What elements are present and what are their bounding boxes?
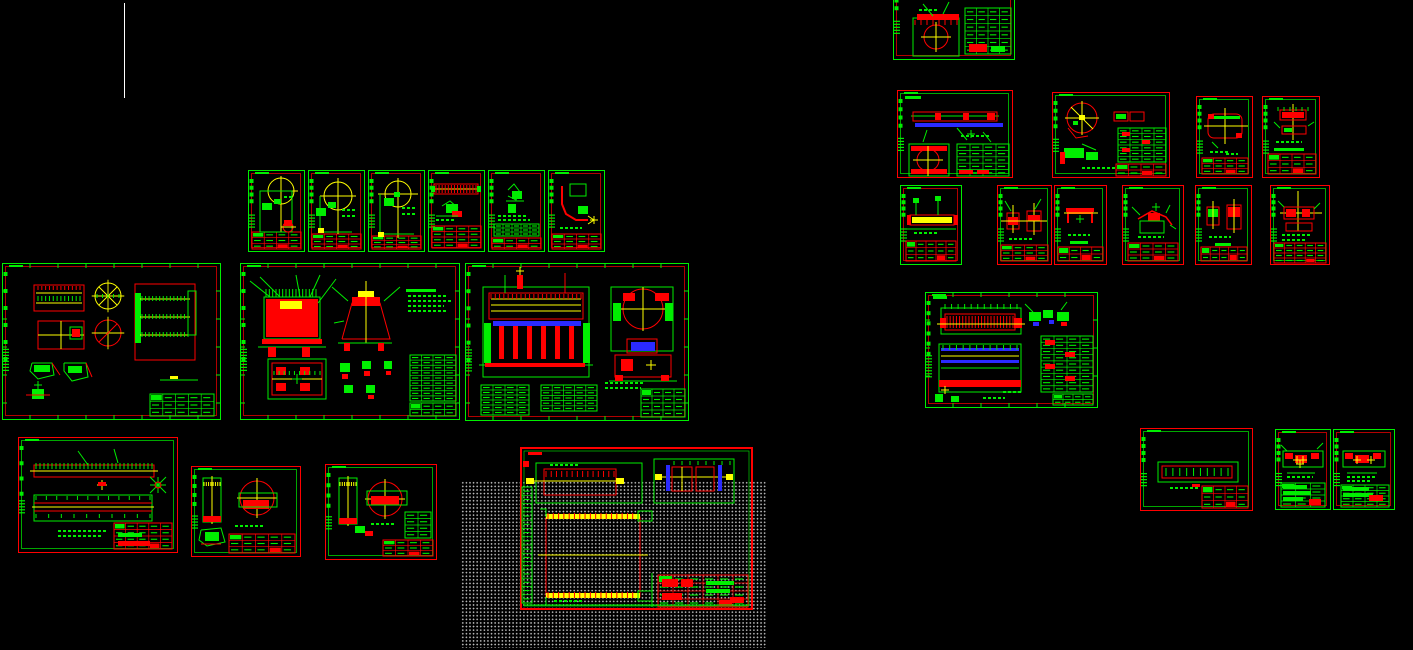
sheet-bent-pipe[interactable]: [548, 170, 605, 252]
sheet-manhole-cover[interactable]: [1196, 96, 1253, 178]
sheet-hook-part[interactable]: [1122, 185, 1184, 265]
sheet-u-bracket[interactable]: [1054, 185, 1107, 265]
stray-line: [124, 3, 125, 98]
sheet-header-assembly[interactable]: [18, 437, 178, 553]
sheet-economizer-assembly[interactable]: [925, 292, 1098, 408]
sheet-boiler-section[interactable]: [465, 263, 689, 421]
sheet-wheel-parts-list[interactable]: [1052, 92, 1170, 178]
sheet-support-detail-1[interactable]: [191, 466, 301, 557]
sheet-drum-circle-2[interactable]: [308, 170, 365, 252]
sheet-fitting-detail[interactable]: [1262, 96, 1320, 178]
sheet-support-detail-2[interactable]: [325, 464, 437, 560]
sheet-small-parts[interactable]: [488, 170, 545, 252]
sheet-boiler-ga[interactable]: [240, 263, 460, 420]
sheet-valve-group-2[interactable]: [1333, 429, 1395, 510]
sheet-drum-circle-3[interactable]: [368, 170, 425, 252]
sheet-grid-layout[interactable]: [520, 447, 753, 610]
cad-model-space[interactable]: [0, 0, 1413, 650]
sheet-lug-pair[interactable]: [997, 185, 1052, 265]
sheet-cross-part[interactable]: [1270, 185, 1330, 265]
sheet-drum-circle-1[interactable]: [248, 170, 305, 252]
sheet-assembly-left[interactable]: [2, 263, 221, 420]
sheet-shaft-assembly[interactable]: [897, 90, 1013, 178]
sheet-block-pair[interactable]: [1195, 185, 1252, 265]
sheet-flange-top-cropped[interactable]: [893, 0, 1015, 60]
sheet-finned-tube[interactable]: [428, 170, 485, 252]
sheet-header-tube[interactable]: [1140, 428, 1253, 511]
sheet-valve-group-1[interactable]: [1275, 429, 1331, 510]
sheet-grate-bar[interactable]: [900, 185, 962, 265]
